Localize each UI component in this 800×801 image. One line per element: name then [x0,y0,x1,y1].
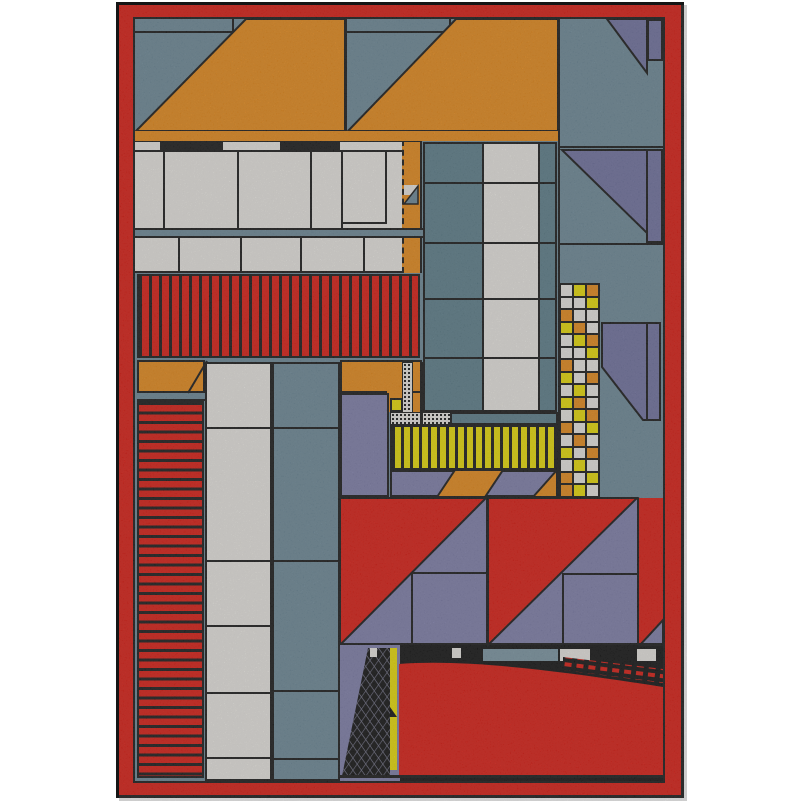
tab-row [135,140,402,152]
mosaic-cell [561,448,572,459]
tile-divider [300,238,302,271]
tile-row-line [274,427,338,429]
mosaic-cell [574,410,585,421]
mosaic-cell [587,435,598,446]
mosaic-cell [587,285,598,296]
mosaic-cell [561,423,572,434]
white-tile-row-1 [135,152,402,228]
band-tick [449,19,451,33]
band-tick [344,19,346,33]
band-line [135,31,450,33]
artwork-frame [116,2,684,798]
trapezoid-divider [345,19,347,132]
mosaic-cell [587,385,598,396]
mosaic-cell [587,473,598,484]
tile-row-line [207,560,270,562]
purple-triangle-top [607,19,647,73]
purple-strip [647,150,662,242]
purple-band [390,470,558,497]
yellow-square [390,398,403,412]
slate-bandlet [450,412,558,425]
composition-canvas [135,19,663,781]
checker-grid [423,142,557,412]
mosaic-cell [574,423,585,434]
tile-row-line [274,690,338,692]
slate-strip [135,228,425,238]
orange-band-left [137,360,205,393]
tile-divider [310,152,312,228]
mosaic-cell [587,360,598,371]
mosaic-cell [561,323,572,334]
mosaic-cell [587,373,598,384]
mosaic-cell [587,323,598,334]
mosaic-cell [574,348,585,359]
tile-row-line [274,758,338,760]
checker-row-line [425,298,555,300]
mosaic-column [559,283,600,498]
checker-row-line [425,242,555,244]
mosaic-cell [587,423,598,434]
checker-row-line [425,182,555,184]
mosaic-cell [574,360,585,371]
mosaic-cell [587,335,598,346]
dotted-band [390,412,451,425]
mosaic-cell [561,360,572,371]
mosaic-cell [561,473,572,484]
tile-divider [237,152,239,228]
purple-triangle-mid [562,150,647,233]
mosaic-cell [587,398,598,409]
mosaic-cell [574,435,585,446]
white-tile-row-2 [135,238,402,273]
red-vertical-stripes-band [137,274,420,358]
mosaic-cell [561,310,572,321]
mosaic-cell [587,448,598,459]
mosaic-cell [561,285,572,296]
mosaic-cell [574,335,585,346]
dark-scene [340,645,663,781]
orange-trapezoid-right [348,19,558,131]
tile-row-line [207,427,270,429]
mosaic-cell [574,448,585,459]
mosaic-cell [574,323,585,334]
mosaic-cell [587,298,598,309]
mosaic-cell [574,460,585,471]
mosaic-cell [574,473,585,484]
tile-divider [240,238,242,271]
white-tile-column [205,362,272,781]
orange-strip [402,140,422,273]
mosaic-cell [561,385,572,396]
mosaic-cell [561,435,572,446]
orange-trapezoid-left [136,19,345,131]
mosaic-cell [574,310,585,321]
tile-divider [363,238,365,271]
purple-block [340,393,389,497]
mosaic-cell [574,485,585,496]
mosaic-cell [574,298,585,309]
region-line [560,146,663,148]
artwork-content [133,17,665,783]
tile-row-line [207,692,270,694]
mosaic-cell [587,460,598,471]
mosaic-cell [587,410,598,421]
tile-divider [341,152,343,228]
checker-row-line [425,357,555,359]
yellow-stripes-block [390,425,558,470]
mosaic-cell [561,373,572,384]
mosaic-cell [561,348,572,359]
tile-row-line [207,757,270,759]
tab-black-segment [280,142,340,150]
tile-divider [178,238,180,271]
mosaic-cell [587,485,598,496]
pentagon-line [646,323,648,420]
tile-row-line [274,560,338,562]
band-tick [232,19,234,33]
panel-inner-line [341,222,387,224]
tile-row-line [207,625,270,627]
mosaic-cell [587,310,598,321]
mosaic-cell [574,373,585,384]
mosaic-cell [587,348,598,359]
purple-strip [648,20,662,60]
mosaic-cell [574,385,585,396]
mosaic-cell [561,335,572,346]
panel-inner-line [385,152,387,224]
mosaic-cell [561,298,572,309]
mosaic-cell [574,285,585,296]
slate-tile-column [272,362,340,781]
mosaic-cell [561,410,572,421]
mosaic-cell [561,398,572,409]
sawtooth-band [340,498,663,645]
mosaic-cell [561,485,572,496]
purple-pentagon [602,323,660,420]
mosaic-cell [561,460,572,471]
red-horizontal-stripes-block [137,400,204,778]
mosaic-cell [574,398,585,409]
region-line [560,243,663,245]
tile-divider [163,152,165,228]
tab-black-segment [160,142,223,150]
